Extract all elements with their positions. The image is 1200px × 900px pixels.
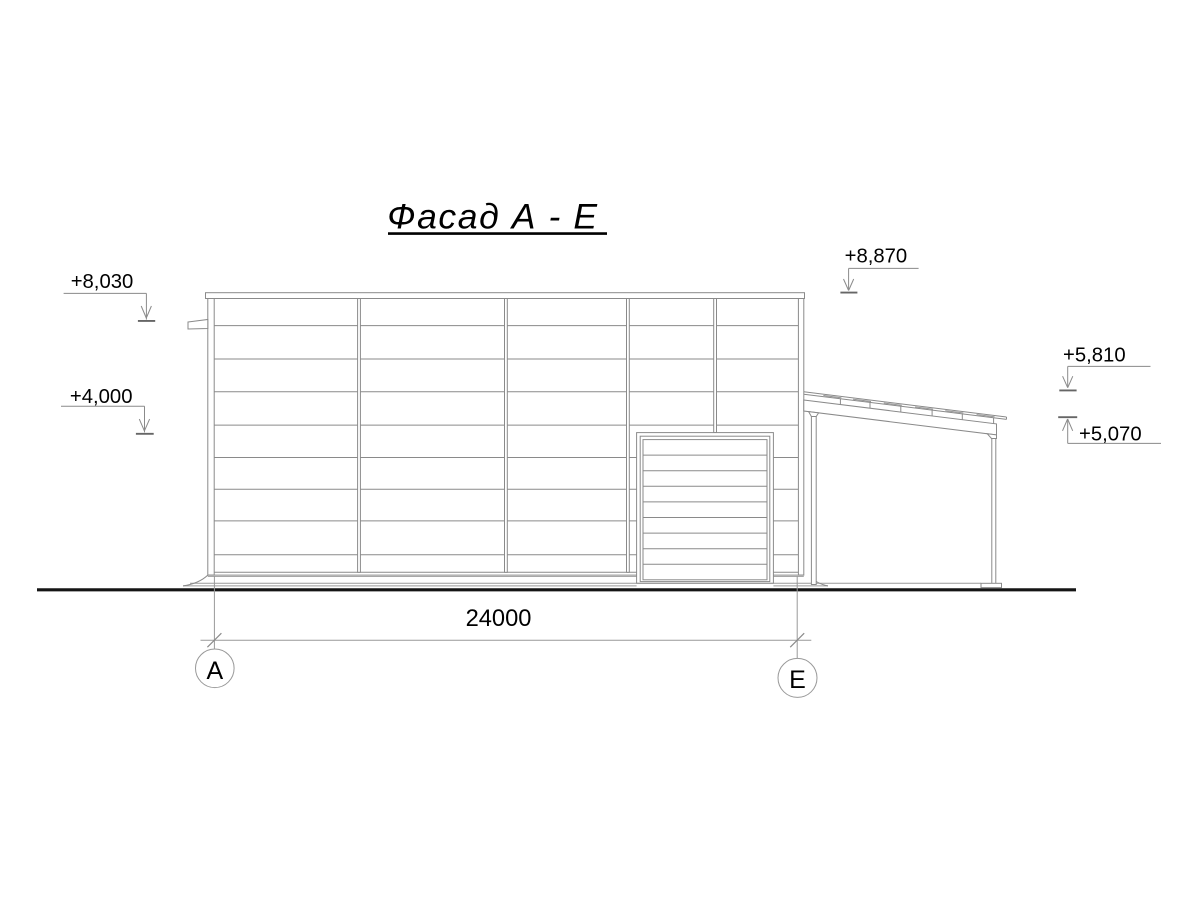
svg-text:+8,030: +8,030 <box>71 271 134 293</box>
svg-text:+5,810: +5,810 <box>1063 344 1126 366</box>
svg-text:+5,070: +5,070 <box>1079 424 1142 446</box>
svg-text:Е: Е <box>789 666 806 694</box>
svg-text:24000: 24000 <box>466 606 532 632</box>
svg-text:А: А <box>206 657 223 685</box>
svg-text:+4,000: +4,000 <box>70 386 133 408</box>
svg-text:+8,870: +8,870 <box>845 245 908 267</box>
svg-text:Фасад А - Е: Фасад А - Е <box>387 197 598 237</box>
